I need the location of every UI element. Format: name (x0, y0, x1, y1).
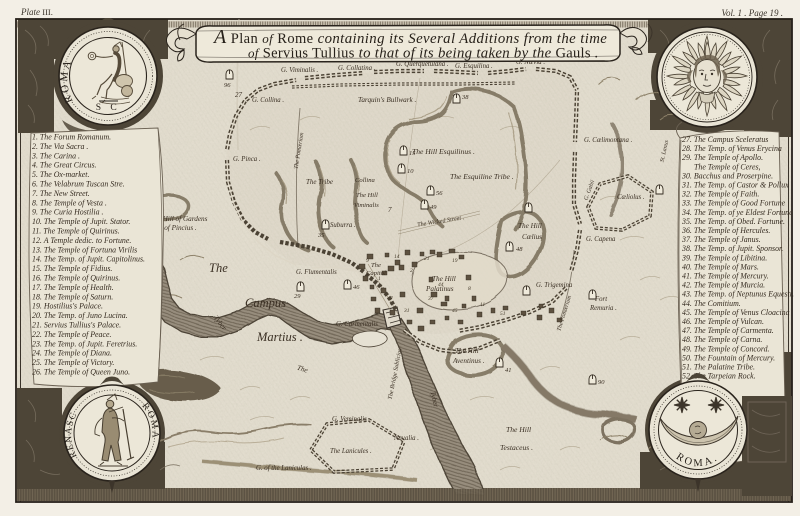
svg-text:Collina: Collina (355, 177, 375, 184)
svg-text:5. The Ox-market.: 5. The Ox-market. (32, 170, 89, 179)
svg-text:G. Collina .: G. Collina . (252, 97, 284, 104)
svg-text:The Esquiline Tribe .: The Esquiline Tribe . (450, 172, 514, 181)
svg-text:4. The Great Circus.: 4. The Great Circus. (32, 161, 97, 170)
svg-text:46: 46 (353, 284, 360, 291)
svg-text:47. The Temple of Carmenta.: 47. The Temple of Carmenta. (682, 326, 774, 335)
svg-text:G. Capena: G. Capena (586, 236, 616, 243)
svg-text:Remuria .: Remuria . (589, 305, 617, 312)
svg-text:S C: S C (96, 103, 121, 113)
svg-text:7: 7 (388, 206, 392, 214)
svg-text:The Hill: The Hill (432, 275, 456, 283)
svg-text:The: The (371, 262, 381, 269)
svg-text:18. The Temple of Saturn.: 18. The Temple of Saturn. (32, 292, 113, 301)
svg-text:2: 2 (410, 268, 413, 274)
svg-text:25. The Temple of Victory.: 25. The Temple of Victory. (32, 358, 114, 367)
svg-text:7: 7 (390, 296, 393, 302)
svg-text:G. of the Laniculas .: G. of the Laniculas . (256, 465, 312, 472)
svg-text:G. Trigemina: G. Trigemina (536, 282, 573, 289)
svg-text:11: 11 (480, 302, 485, 308)
svg-text:G. Veminalis .: G. Veminalis . (332, 416, 370, 423)
svg-text:24. The Temple of Diana.: 24. The Temple of Diana. (32, 349, 112, 358)
svg-text:39. The Temple of Libitina.: 39. The Temple of Libitina. (681, 253, 767, 262)
svg-text:49. The Temple of Concord.: 49. The Temple of Concord. (682, 344, 770, 353)
svg-text:Cælius: Cælius (522, 233, 542, 241)
svg-text:G. Carmentalis: G. Carmentalis (336, 321, 378, 328)
svg-text:7. The New Street.: 7. The New Street. (32, 189, 90, 198)
svg-text:8. The Temple of Vesta .: 8. The Temple of Vesta . (32, 198, 107, 207)
svg-text:2. The Via Sacra .: 2. The Via Sacra . (32, 142, 88, 151)
svg-text:46. The Temple of Vulcan.: 46. The Temple of Vulcan. (682, 317, 764, 326)
svg-text:G. Esquilina .: G. Esquilina . (455, 63, 493, 70)
svg-text:22. The Temple of Peace.: 22. The Temple of Peace. (32, 330, 112, 339)
svg-text:31: 31 (403, 308, 410, 314)
svg-text:50. The Fountain of Mercury.: 50. The Fountain of Mercury. (682, 353, 775, 362)
svg-text:30. Bacchus and Proserpine.: 30. Bacchus and Proserpine. (681, 171, 773, 180)
svg-text:96: 96 (224, 82, 231, 89)
svg-text:36. The Temple of Hercules.: 36. The Temple of Hercules. (681, 226, 770, 235)
svg-text:10: 10 (407, 168, 414, 175)
svg-text:40. The Temple of Mars.: 40. The Temple of Mars. (682, 262, 759, 271)
svg-text:37: 37 (427, 296, 434, 302)
svg-text:Cæliolus .: Cæliolus . (617, 194, 645, 201)
svg-text:51: 51 (500, 311, 506, 317)
svg-text:33. The Temple of Good Fortune: 33. The Temple of Good Fortune (681, 199, 786, 208)
svg-text:90: 90 (598, 379, 605, 386)
svg-text:28. The Temp. of Venus Erycina: 28. The Temp. of Venus Erycina (682, 144, 782, 153)
svg-text:The Hill: The Hill (518, 222, 542, 230)
svg-text:42. The Temple of Murcia.: 42. The Temple of Murcia. (682, 281, 765, 290)
svg-text:14. The Temp. of Jupit. Capito: 14. The Temp. of Jupit. Capitolinus. (32, 255, 145, 264)
svg-text:The Temple of Ceres,: The Temple of Ceres, (694, 162, 761, 171)
svg-text:Tarquin's Bullwark .: Tarquin's Bullwark . (358, 96, 417, 104)
svg-text:38: 38 (461, 94, 469, 101)
svg-text:13. The Temple of Fortuna Viri: 13. The Temple of Fortuna Virilis (32, 245, 137, 254)
svg-text:Testaceus .: Testaceus . (500, 443, 533, 452)
svg-text:The Lanicules .: The Lanicules . (330, 448, 372, 455)
svg-text:41. The Temple of Mercury.: 41. The Temple of Mercury. (682, 272, 769, 281)
svg-text:G. Viminalis .: G. Viminalis . (281, 67, 319, 74)
svg-text:48. The Temple of Carna.: 48. The Temple of Carna. (682, 335, 762, 344)
svg-text:32. The Temple of Faith.: 32. The Temple of Faith. (681, 190, 759, 199)
svg-text:Fort: Fort (594, 296, 608, 303)
svg-text:45: 45 (452, 307, 458, 314)
svg-text:31. The Temp. of Castor & Poll: 31. The Temp. of Castor & Pollux (681, 181, 789, 190)
svg-text:9: 9 (366, 258, 369, 264)
svg-text:The Hill: The Hill (455, 347, 479, 355)
svg-text:21. Servius Tullius's Palace.: 21. Servius Tullius's Palace. (32, 321, 121, 330)
svg-text:11. The Temple of Quirinus.: 11. The Temple of Quirinus. (32, 227, 120, 236)
svg-text:15. The Temple of Fidius.: 15. The Temple of Fidius. (32, 264, 112, 273)
svg-text:20. The Temp. of Juno Lucina.: 20. The Temp. of Juno Lucina. (32, 311, 128, 320)
svg-text:26. The Temple of Queen Juno.: 26. The Temple of Queen Juno. (32, 368, 130, 377)
svg-text:Campus: Campus (245, 296, 286, 310)
svg-text:34. The Temp. of ye Eldest For: 34. The Temp. of ye Eldest Fortune (681, 208, 793, 217)
svg-text:37. The Temple of Janus.: 37. The Temple of Janus. (681, 235, 761, 244)
svg-text:3. The Carina .: 3. The Carina . (31, 151, 80, 160)
svg-text:G. Cælimontana .: G. Cælimontana . (584, 137, 633, 144)
svg-text:Navalia .: Navalia . (393, 435, 419, 442)
svg-text:45. The Temple of Venus Cloaci: 45. The Temple of Venus Cloacina (682, 308, 790, 317)
svg-text:G. Collatina .: G. Collatina . (338, 65, 376, 72)
svg-text:Suburra .: Suburra . (330, 222, 356, 229)
svg-text:Aventinus .: Aventinus . (452, 357, 485, 365)
svg-text:35. The Temp. of Obed. Fortune: 35. The Temp. of Obed. Fortune. (681, 217, 785, 226)
svg-text:The Hill Esquilinus .: The Hill Esquilinus . (412, 147, 475, 156)
svg-text:19. Hostilius's Palace.: 19. Hostilius's Palace. (32, 302, 103, 311)
svg-text:21: 21 (424, 256, 430, 262)
svg-text:27. The Campus Sceleratus: 27. The Campus Sceleratus (682, 135, 768, 144)
svg-text:51. The Palatine Tribe.: 51. The Palatine Tribe. (682, 363, 755, 372)
svg-text:38. The Temp. of Jupit. Sponso: 38. The Temp. of Jupit. Sponsor. (681, 244, 783, 253)
svg-text:49: 49 (430, 204, 437, 211)
svg-text:Martius .: Martius . (256, 330, 303, 344)
svg-text:19: 19 (452, 258, 458, 264)
svg-text:44. The Comitium.: 44. The Comitium. (682, 299, 741, 308)
svg-text:43. The Temp. of Neptunus Eque: 43. The Temp. of Neptunus Equestr. (682, 290, 794, 299)
svg-text:G. Flumentalis: G. Flumentalis (296, 269, 337, 276)
svg-text:16. The Temple of Quirinus.: 16. The Temple of Quirinus. (32, 274, 120, 283)
svg-text:The Hill: The Hill (356, 192, 378, 199)
svg-text:17. The Temple of Health.: 17. The Temple of Health. (32, 283, 114, 292)
svg-text:Viminalis: Viminalis (354, 202, 379, 209)
svg-text:27: 27 (235, 91, 243, 99)
svg-text:10. The Temple of Jupit. Stato: 10. The Temple of Jupit. Stator. (32, 217, 130, 226)
svg-text:The Hill: The Hill (506, 425, 531, 434)
svg-text:Capitol: Capitol (366, 270, 386, 277)
svg-text:56: 56 (436, 190, 443, 197)
svg-text:of Servius Tullius to that of: of Servius Tullius to that of its being … (248, 46, 599, 62)
svg-text:Palatinus: Palatinus (425, 285, 454, 293)
svg-text:48: 48 (516, 246, 523, 253)
svg-text:Vol. 1 . Page 19 .: Vol. 1 . Page 19 . (722, 8, 784, 18)
svg-text:The Tribe: The Tribe (306, 178, 333, 186)
svg-text:1. The Forum Romanum.: 1. The Forum Romanum. (32, 133, 111, 142)
svg-text:14: 14 (394, 253, 400, 260)
svg-text:29: 29 (294, 293, 301, 300)
svg-text:9. The Curia Hostilia .: 9. The Curia Hostilia . (32, 208, 103, 217)
svg-text:8: 8 (468, 286, 471, 292)
svg-text:The: The (209, 261, 228, 275)
svg-text:Plate III.: Plate III. (20, 7, 53, 17)
svg-text:G. Pinca .: G. Pinca . (233, 156, 261, 163)
svg-text:35: 35 (317, 232, 325, 239)
svg-text:41: 41 (505, 367, 512, 374)
svg-text:12. A Temple dedic. to Fortune: 12. A Temple dedic. to Fortune. (32, 236, 131, 245)
svg-text:29. The Temple of Apollo.: 29. The Temple of Apollo. (682, 153, 763, 162)
svg-text:23. The Temp. of Jupit. Feretr: 23. The Temp. of Jupit. Feretrius. (32, 339, 137, 348)
svg-text:6. The Velabrum Tuscan Stre.: 6. The Velabrum Tuscan Stre. (32, 180, 125, 189)
